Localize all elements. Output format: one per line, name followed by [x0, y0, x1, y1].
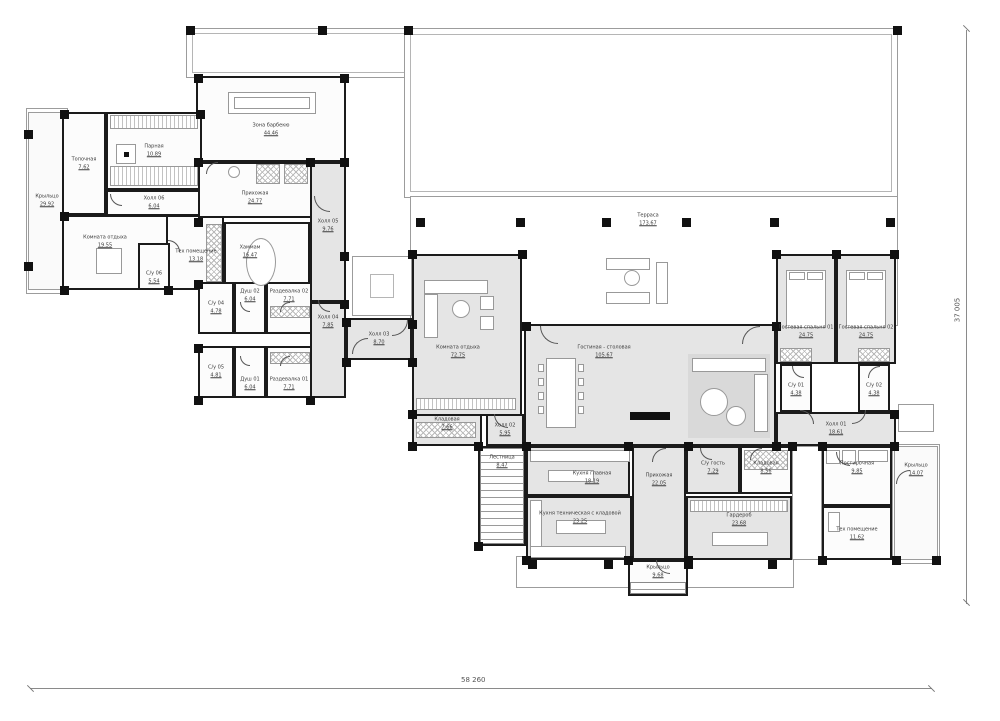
room [776, 412, 896, 446]
furniture-rect [656, 262, 668, 304]
furniture-rect [538, 406, 544, 414]
furniture-rect [480, 296, 494, 310]
column-marker [522, 322, 531, 331]
column-marker [408, 442, 417, 451]
column-marker [342, 318, 351, 327]
room [234, 346, 266, 398]
column-marker [404, 26, 413, 35]
column-marker [890, 442, 899, 451]
column-marker [408, 250, 417, 259]
furniture-rect [606, 258, 650, 270]
column-marker [522, 442, 531, 451]
room [198, 282, 234, 334]
column-marker [306, 396, 315, 405]
column-marker [416, 218, 425, 227]
room [198, 346, 234, 398]
column-marker [682, 218, 691, 227]
column-marker [306, 158, 315, 167]
column-marker [684, 556, 693, 565]
furniture-black [630, 412, 670, 420]
furniture-rect [480, 316, 494, 330]
column-marker [886, 218, 895, 227]
column-marker [318, 26, 327, 35]
column-marker [624, 442, 633, 451]
room [28, 112, 66, 290]
column-marker [818, 556, 827, 565]
furniture-rect [234, 97, 310, 109]
column-marker [342, 358, 351, 367]
furniture-linesv [110, 166, 198, 186]
furniture-rect [538, 392, 544, 400]
column-marker [196, 110, 205, 119]
column-marker [932, 556, 941, 565]
column-marker [194, 280, 203, 289]
column-marker [186, 26, 195, 35]
column-marker [340, 252, 349, 261]
furniture-circle [700, 388, 728, 416]
column-marker [684, 442, 693, 451]
column-marker [408, 410, 417, 419]
furniture-rect [578, 406, 584, 414]
column-marker [474, 442, 483, 451]
dimension-line-bottom [30, 688, 932, 689]
deck-outline [192, 33, 416, 73]
column-marker [772, 250, 781, 259]
column-marker [340, 158, 349, 167]
column-marker [892, 556, 901, 565]
floor-plan-canvas: 58 260 37 005 Крыльцо29.92Зона барбекю44… [0, 0, 1000, 721]
furniture-rect [530, 450, 630, 462]
furniture-rect [754, 374, 768, 432]
room [686, 446, 740, 494]
furniture-rect [538, 364, 544, 372]
deck-outline [898, 404, 934, 432]
column-marker [602, 218, 611, 227]
furniture-rect [828, 512, 840, 532]
column-marker [194, 396, 203, 405]
furniture-rect [546, 358, 576, 428]
column-marker [890, 250, 899, 259]
furniture-stairs [630, 582, 686, 594]
room [234, 282, 266, 334]
column-marker [408, 358, 417, 367]
furniture-hatchx [256, 164, 280, 184]
furniture-circle [726, 406, 746, 426]
furniture-rect [692, 358, 766, 372]
room [894, 446, 938, 560]
furniture-rect [548, 470, 594, 482]
column-marker [770, 218, 779, 227]
furniture-linesv [110, 115, 198, 129]
column-marker [194, 218, 203, 227]
furniture-circle [228, 166, 240, 178]
furniture-rect [96, 248, 122, 274]
column-marker [164, 286, 173, 295]
furniture-hatchx [206, 224, 222, 282]
dimension-bottom-label: 58 260 [458, 676, 489, 684]
furniture-rect [867, 272, 883, 280]
furniture-rect [424, 294, 438, 338]
furniture-circle [452, 300, 470, 318]
furniture-rect [712, 532, 768, 546]
furniture-hatchx [780, 348, 812, 362]
furniture-rect [789, 272, 805, 280]
furniture-linesv [416, 398, 516, 410]
deck-outline [792, 446, 822, 560]
room [310, 162, 346, 302]
column-marker [340, 74, 349, 83]
column-marker [24, 262, 33, 271]
column-marker [768, 560, 777, 569]
column-marker [60, 212, 69, 221]
column-marker [832, 250, 841, 259]
deck-outline [410, 34, 892, 192]
furniture-rect [578, 364, 584, 372]
furniture-rect [530, 546, 626, 558]
column-marker [194, 74, 203, 83]
column-marker [60, 286, 69, 295]
column-marker [340, 300, 349, 309]
dimension-right-label: 37 005 [953, 295, 961, 326]
furniture-rect [424, 280, 488, 294]
column-marker [624, 556, 633, 565]
furniture-rect [578, 378, 584, 386]
column-marker [772, 322, 781, 331]
column-marker [890, 410, 899, 419]
furniture-circle [624, 270, 640, 286]
column-marker [788, 442, 797, 451]
furniture-rect [556, 520, 606, 534]
column-marker [24, 130, 33, 139]
column-marker [516, 218, 525, 227]
furniture-rect [807, 272, 823, 280]
furniture-rect [538, 378, 544, 386]
furniture-hatchx [744, 450, 788, 470]
room [632, 446, 686, 560]
column-marker [893, 26, 902, 35]
furniture-hatchx [270, 306, 310, 318]
furniture-rect [606, 292, 650, 304]
furniture-hatchx [270, 352, 310, 364]
furniture-rect [578, 392, 584, 400]
column-marker [604, 560, 613, 569]
column-marker [194, 158, 203, 167]
dimension-line-right [966, 30, 967, 604]
column-marker [522, 556, 531, 565]
room [62, 112, 106, 215]
column-marker [518, 250, 527, 259]
furniture-hatchx [284, 164, 308, 184]
deck-outline [370, 274, 394, 298]
column-marker [818, 442, 827, 451]
room [310, 302, 346, 398]
column-marker [408, 320, 417, 329]
furniture-stairs [480, 448, 524, 544]
furniture-rect [858, 450, 888, 462]
room [138, 243, 170, 290]
column-marker [60, 110, 69, 119]
furniture-hatchx [416, 422, 476, 438]
furniture-black [124, 152, 129, 157]
furniture-hatchx [858, 348, 890, 362]
furniture-circle [246, 238, 276, 286]
column-marker [772, 442, 781, 451]
room [196, 76, 346, 162]
furniture-linesv [690, 500, 788, 512]
furniture-rect [849, 272, 865, 280]
column-marker [474, 542, 483, 551]
column-marker [194, 344, 203, 353]
